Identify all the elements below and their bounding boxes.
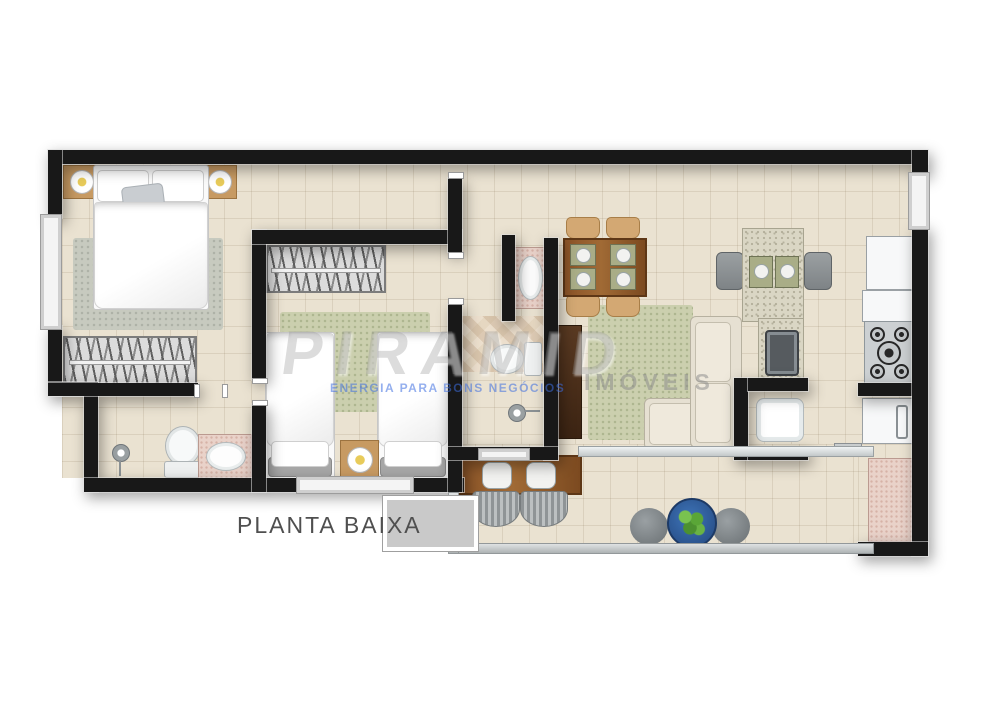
wall	[912, 226, 928, 556]
wall	[748, 378, 808, 391]
door-jamb	[222, 384, 228, 398]
wall	[448, 178, 462, 252]
wall	[252, 230, 266, 380]
window-bathroom2	[478, 448, 530, 461]
wall	[48, 150, 62, 218]
door-jamb	[448, 172, 464, 179]
wall	[912, 150, 928, 174]
wall	[84, 390, 98, 492]
floor-plan-image: PIRAMID ENERGIA PARA BONS NEGÓCIOS IMÓVE…	[0, 0, 1000, 706]
door-jamb	[448, 252, 464, 259]
balcony-railing-bottom	[448, 543, 874, 554]
door-jamb	[448, 298, 464, 305]
door-jamb	[252, 400, 268, 406]
wall	[252, 404, 266, 492]
watermark-tagline: ENERGIA PARA BONS NEGÓCIOS	[330, 381, 565, 395]
window-kitchen	[908, 172, 930, 230]
wall	[48, 150, 928, 164]
watermark-brand: PIRAMID	[277, 318, 633, 389]
wall	[858, 383, 916, 396]
plan-title: PLANTA BAIXA	[237, 512, 422, 539]
watermark-division: IMÓVEIS	[584, 369, 715, 396]
balcony-sliding-door	[578, 446, 874, 457]
window-master	[40, 214, 62, 330]
wall	[252, 230, 462, 244]
door-jamb	[194, 384, 200, 398]
wall	[502, 235, 515, 321]
wall	[48, 383, 198, 396]
window-bedroom2	[296, 476, 414, 494]
door-jamb	[252, 378, 268, 384]
